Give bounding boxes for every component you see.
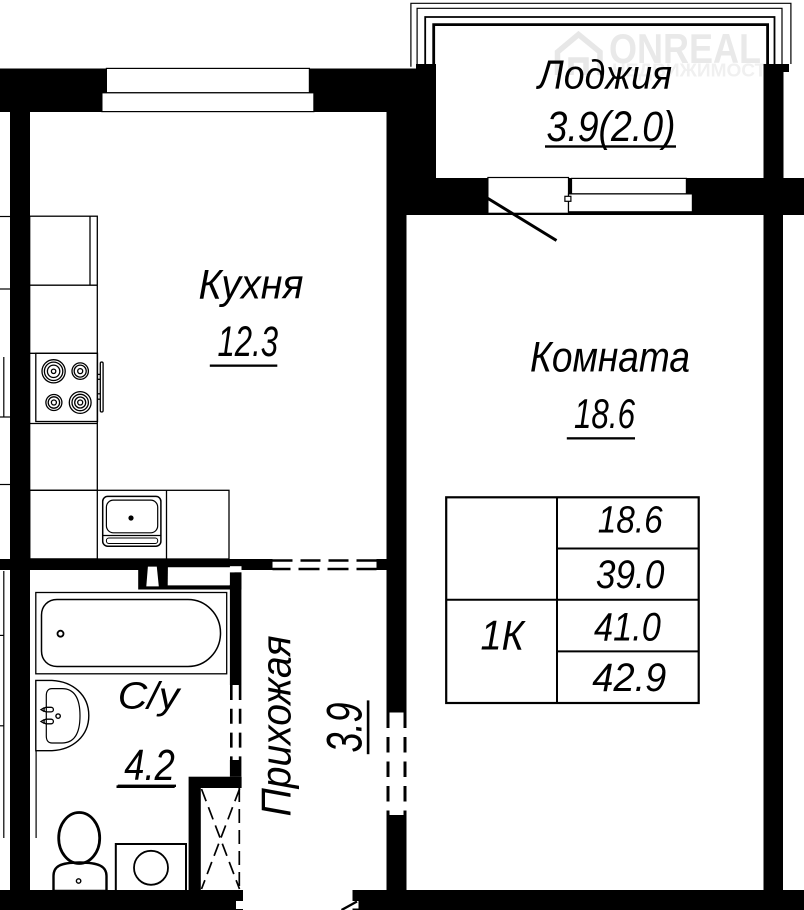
svg-text:12.3: 12.3	[218, 318, 279, 366]
svg-text:39.0: 39.0	[596, 553, 665, 597]
svg-text:3.9: 3.9	[317, 703, 373, 753]
svg-text:18.6: 18.6	[574, 390, 635, 437]
svg-text:42.9: 42.9	[592, 656, 666, 700]
svg-text:41.0: 41.0	[594, 606, 661, 650]
svg-text:1К: 1К	[481, 612, 527, 659]
svg-text:Прихожая: Прихожая	[253, 636, 300, 817]
svg-text:4.2: 4.2	[124, 741, 175, 790]
svg-text:С/у: С/у	[118, 676, 182, 718]
svg-text:18.6: 18.6	[598, 499, 664, 541]
svg-text:Комната: Комната	[530, 334, 690, 382]
svg-text:3.9(2.0): 3.9(2.0)	[547, 103, 676, 151]
svg-text:Кухня: Кухня	[199, 261, 304, 308]
svg-text:Лоджия: Лоджия	[535, 52, 672, 98]
